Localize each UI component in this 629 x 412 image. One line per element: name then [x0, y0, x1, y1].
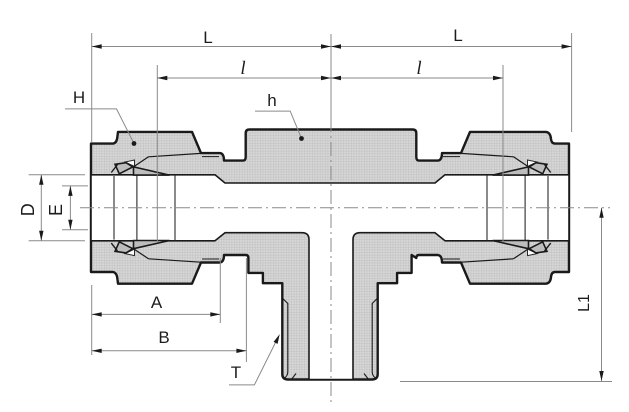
svg-text:A: A	[151, 293, 163, 312]
svg-text:L: L	[203, 28, 212, 47]
svg-text:E: E	[46, 204, 66, 216]
svg-text:T: T	[231, 363, 241, 382]
svg-text:L: L	[453, 26, 462, 45]
svg-text:l: l	[416, 58, 421, 79]
svg-text:H: H	[73, 88, 85, 107]
svg-text:l: l	[240, 58, 245, 79]
svg-text:h: h	[267, 91, 276, 110]
svg-text:D: D	[18, 203, 38, 216]
svg-text:L1: L1	[576, 294, 593, 312]
svg-text:B: B	[158, 328, 169, 347]
